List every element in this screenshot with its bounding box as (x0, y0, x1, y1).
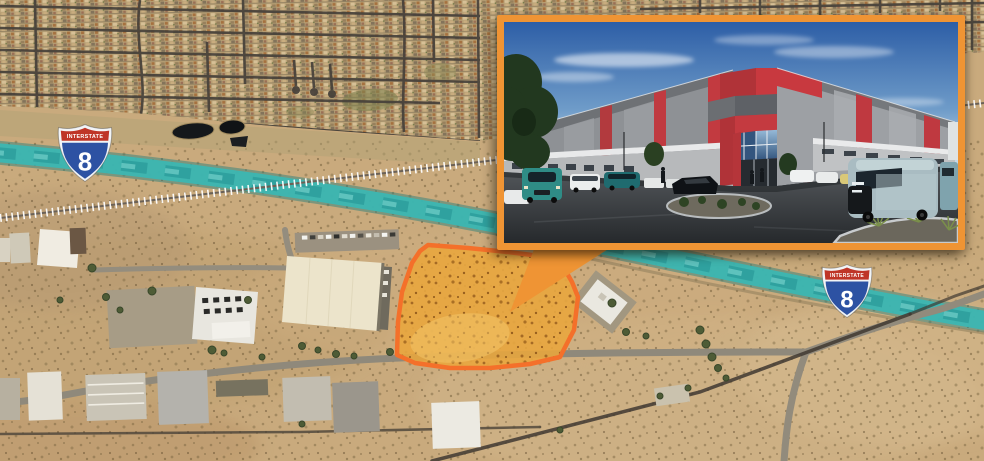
shield-label: INTERSTATE (830, 273, 864, 279)
building-rendering (504, 22, 958, 243)
shield-number: 8 (78, 147, 92, 177)
white-cargo-van (848, 158, 938, 223)
shield-number: 8 (840, 286, 853, 313)
shield-label: INTERSTATE (67, 134, 104, 140)
site-aerial-figure: INTERSTATE 8 INTERSTATE 8 (0, 0, 984, 461)
property-parcel-highlight (390, 240, 590, 375)
inset-callout (497, 15, 965, 250)
